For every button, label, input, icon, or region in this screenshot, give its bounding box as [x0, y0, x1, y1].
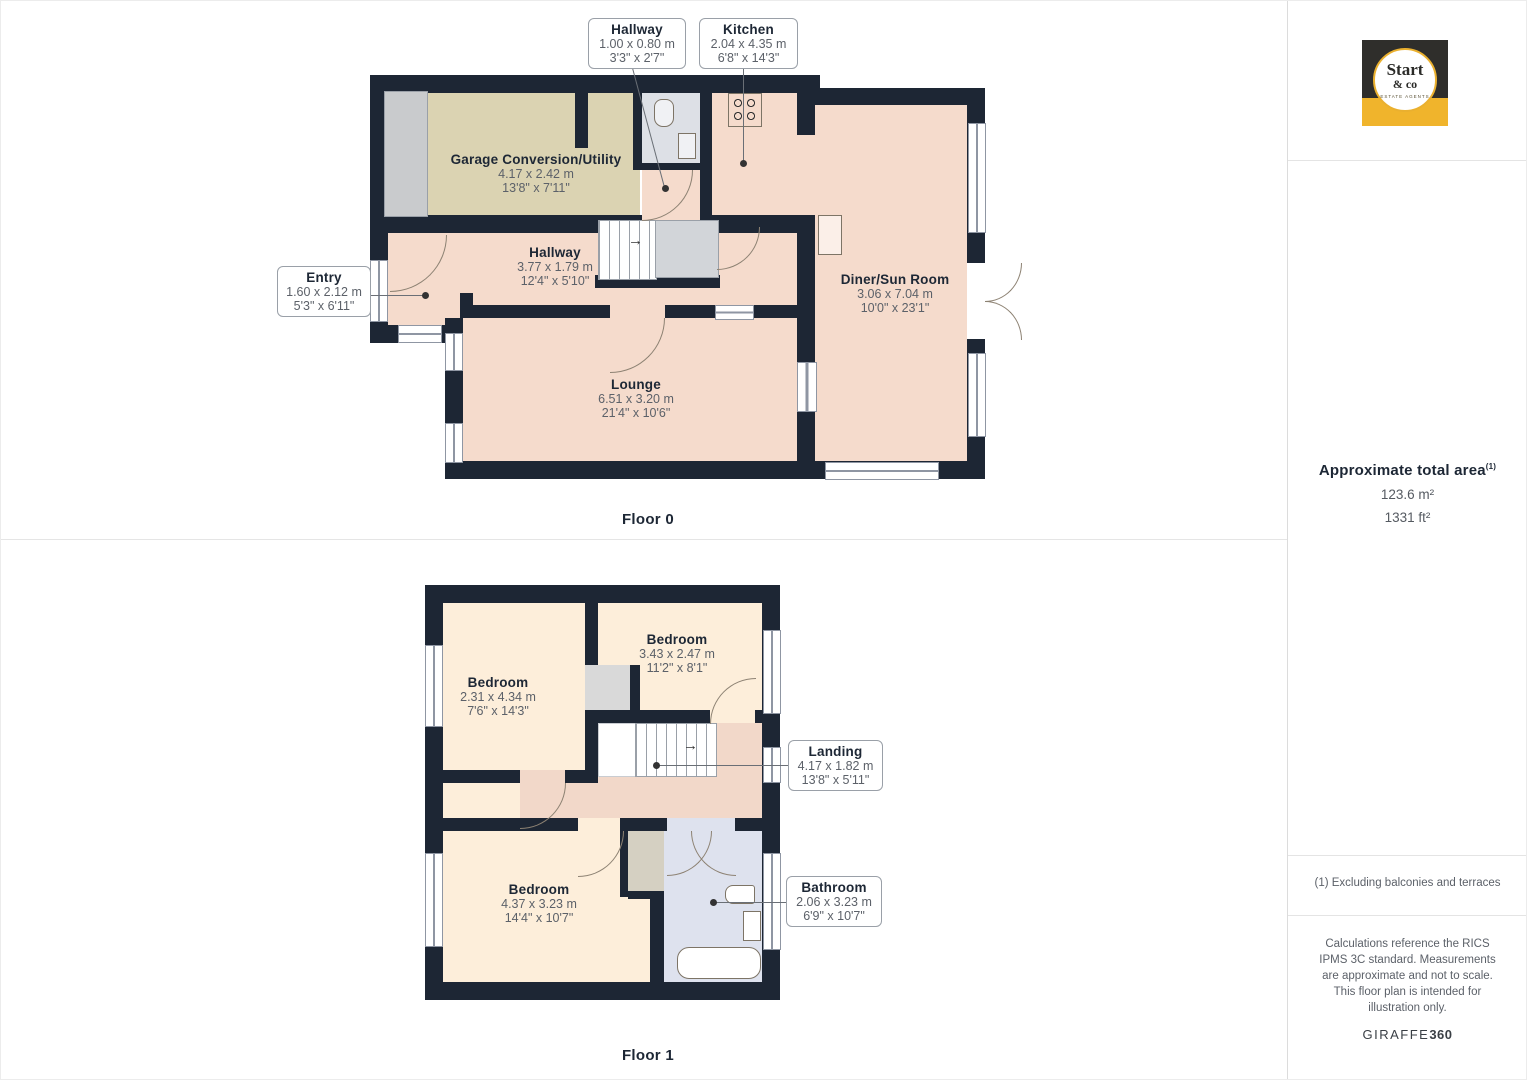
total-area-title-text: Approximate total area	[1319, 462, 1486, 479]
info-sidebar: Start & co ESTATE AGENTS Approximate tot…	[1287, 0, 1527, 1080]
callout-dim-metric: 4.17 x 1.82 m	[793, 759, 878, 773]
footnote-text: (1) Excluding balconies and terraces	[1300, 877, 1515, 889]
callout-title: Entry	[282, 270, 366, 285]
callout-title: Landing	[793, 744, 878, 759]
window	[425, 645, 443, 727]
wall	[633, 93, 642, 170]
callout-entry: Entry 1.60 x 2.12 m 5'3" x 6'11"	[277, 266, 371, 317]
callout-leader	[715, 902, 786, 903]
wall	[575, 93, 588, 148]
brand-suffix: 360	[1429, 1027, 1452, 1042]
wall	[650, 899, 664, 982]
door-opening	[610, 305, 665, 318]
total-area-title: Approximate total area(1)	[1288, 462, 1527, 479]
staircase-treads	[635, 723, 717, 777]
callout-hallway: Hallway 1.00 x 0.80 m 3'3" x 2'7"	[588, 18, 686, 69]
callout-leader	[743, 68, 744, 163]
window	[763, 630, 781, 714]
callout-leader	[658, 765, 788, 766]
window	[445, 333, 463, 371]
room-dot	[653, 762, 660, 769]
room-landing	[715, 723, 762, 775]
callout-kitchen: Kitchen 2.04 x 4.35 m 6'8" x 14'3"	[699, 18, 798, 69]
room-bedroom-1	[443, 603, 585, 783]
total-area-block: Approximate total area(1) 123.6 m² 1331 …	[1288, 462, 1527, 525]
toilet-icon	[654, 99, 674, 127]
wall	[370, 75, 820, 93]
garage-door	[384, 91, 428, 217]
wall	[585, 603, 598, 665]
window	[445, 423, 463, 463]
window	[825, 462, 939, 480]
callout-dim-metric: 1.00 x 0.80 m	[593, 37, 681, 51]
room-dot	[710, 899, 717, 906]
wall	[630, 665, 640, 710]
callout-landing: Landing 4.17 x 1.82 m 13'8" x 5'11"	[788, 740, 883, 791]
hob-icon	[728, 93, 762, 127]
wall	[443, 818, 578, 831]
staircase-treads	[598, 220, 657, 280]
giraffe360-brand: GIRAFFE360	[1288, 1027, 1527, 1042]
wall	[425, 982, 780, 1000]
callout-dim-metric: 2.04 x 4.35 m	[704, 37, 793, 51]
room-dot	[422, 292, 429, 299]
window	[968, 353, 986, 437]
disclaimer-text: Calculations reference the RICS IPMS 3C …	[1315, 936, 1500, 1016]
floor0-label: Floor 0	[593, 511, 703, 528]
brand-name: GIRAFFE	[1362, 1027, 1429, 1042]
callout-title: Kitchen	[704, 22, 793, 37]
room-diner-sun-room	[815, 105, 967, 461]
window	[398, 325, 442, 343]
wall	[425, 585, 780, 603]
window	[370, 260, 388, 322]
internal-window	[715, 305, 754, 320]
floorplan-page: { "colors": { "wall": "#1d2634", "floor0…	[0, 0, 1527, 1080]
french-door-opening	[967, 263, 985, 339]
callout-dim-imperial: 6'9" x 10'7"	[791, 909, 877, 923]
total-area-footnote-ref: (1)	[1486, 462, 1496, 471]
wall	[620, 818, 667, 831]
callout-title: Hallway	[593, 22, 681, 37]
logo-circle: Start & co ESTATE AGENTS	[1373, 48, 1437, 112]
door-opening	[667, 818, 735, 831]
french-door-arc	[985, 301, 1022, 340]
startco-logo: Start & co ESTATE AGENTS	[1362, 40, 1448, 126]
wall	[628, 891, 664, 899]
total-area-metric: 123.6 m²	[1288, 487, 1527, 502]
closet	[628, 831, 664, 891]
wall	[815, 88, 985, 105]
room-dot	[662, 185, 669, 192]
cabinet-icon	[818, 215, 842, 255]
door-opening	[578, 818, 620, 831]
sidebar-divider	[1288, 855, 1527, 856]
bathtub-icon	[677, 947, 761, 979]
stair-void	[598, 723, 637, 777]
callout-dim-imperial: 3'3" x 2'7"	[593, 51, 681, 65]
internal-window	[797, 362, 817, 412]
floor1-label: Floor 1	[593, 1047, 703, 1064]
callout-bathroom: Bathroom 2.06 x 3.23 m 6'9" x 10'7"	[786, 876, 882, 927]
sink-icon	[678, 133, 696, 159]
callout-dim-metric: 1.60 x 2.12 m	[282, 285, 366, 299]
stairs-direction-arrow: →	[683, 738, 698, 753]
window	[968, 123, 986, 233]
callout-title: Bathroom	[791, 880, 877, 895]
closet	[585, 665, 630, 710]
french-door-arc	[985, 263, 1022, 302]
wall	[735, 818, 762, 831]
callout-dim-imperial: 6'8" x 14'3"	[704, 51, 793, 65]
door-opening	[520, 770, 565, 783]
staircase-landing	[655, 220, 719, 278]
stairs-direction-arrow: →	[628, 233, 643, 248]
sidebar-divider	[1288, 915, 1527, 916]
wall	[700, 93, 712, 233]
room-bedroom-1-nook	[443, 783, 520, 820]
logo-tagline: ESTATE AGENTS	[1375, 94, 1435, 99]
callout-dim-imperial: 13'8" x 5'11"	[793, 773, 878, 787]
wall	[642, 163, 700, 170]
sink-icon	[743, 911, 761, 941]
wall	[797, 215, 815, 461]
wall	[585, 710, 598, 783]
callout-dim-imperial: 5'3" x 6'11"	[282, 299, 366, 313]
logo-name-line2: & co	[1375, 78, 1435, 91]
room-dot	[740, 160, 747, 167]
sidebar-divider	[1288, 160, 1527, 161]
wall	[797, 89, 815, 135]
floor1-plan: → Bedroom 2.31 x 4.34 m 7'6" x 14'3" Bed…	[425, 585, 780, 1000]
callout-dim-metric: 2.06 x 3.23 m	[791, 895, 877, 909]
window	[425, 853, 443, 947]
total-area-imperial: 1331 ft²	[1288, 510, 1527, 525]
floor-panel-divider	[0, 539, 1287, 540]
logo-name-line1: Start	[1375, 61, 1435, 78]
floor0-plan: → Garage Conversion/Utility 4.17 x 2.42 …	[370, 75, 985, 495]
